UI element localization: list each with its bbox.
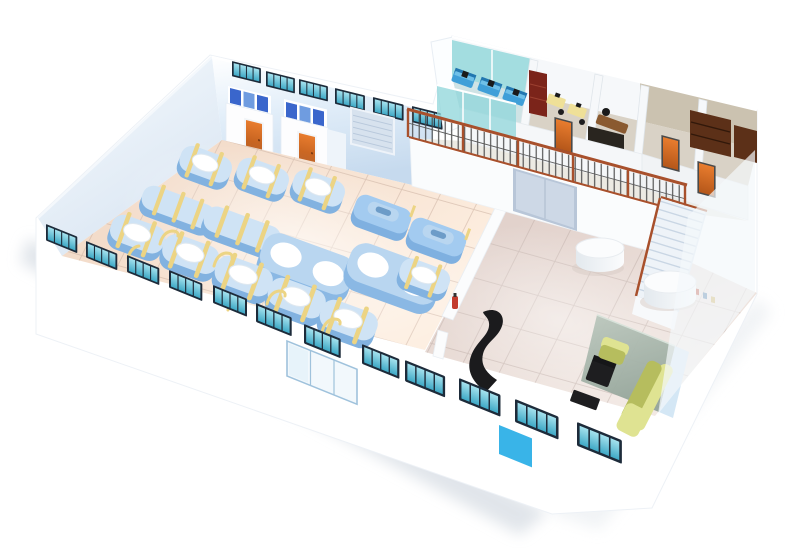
mezzanine-door [661,135,679,172]
maroon-bookshelf [529,70,547,117]
illustration-canvas: Factory facility — 3D isometric cutaway … [0,0,800,550]
manager-chair [602,108,610,116]
office-chair [558,109,564,115]
round-table [572,238,624,276]
office-chair [579,119,585,125]
floorplan-3d-render: Factory facility — 3D isometric cutaway … [0,0,800,550]
